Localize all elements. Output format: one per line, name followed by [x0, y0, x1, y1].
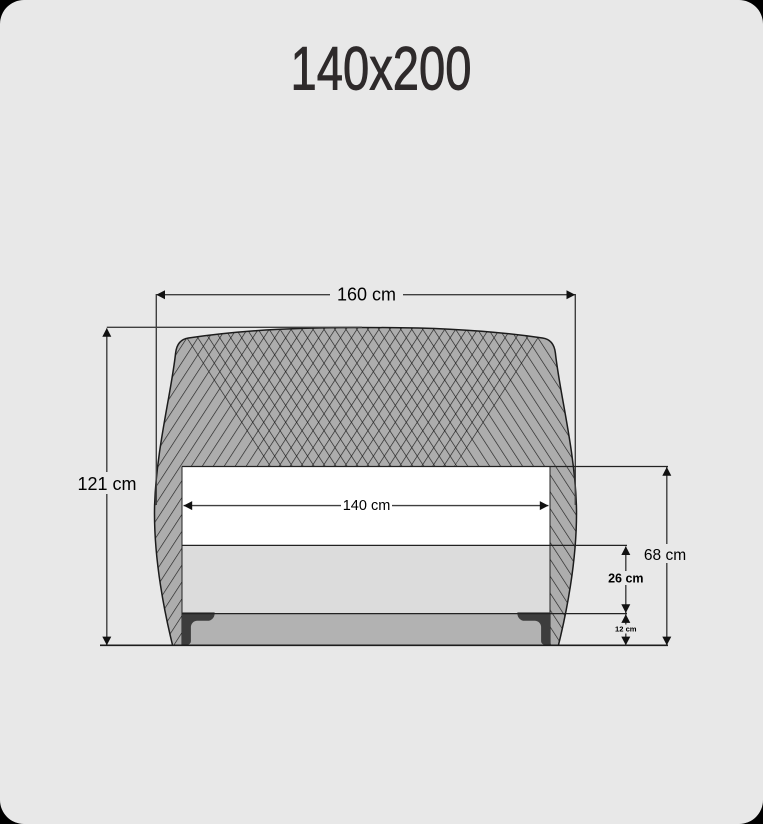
svg-text:12 cm: 12 cm — [615, 625, 637, 634]
svg-text:121 cm: 121 cm — [77, 474, 136, 494]
svg-text:140x200: 140x200 — [291, 35, 472, 103]
svg-text:26 cm: 26 cm — [608, 571, 643, 585]
svg-text:68 cm: 68 cm — [644, 547, 686, 564]
svg-text:140 cm: 140 cm — [343, 498, 391, 514]
svg-text:160 cm: 160 cm — [337, 285, 396, 305]
